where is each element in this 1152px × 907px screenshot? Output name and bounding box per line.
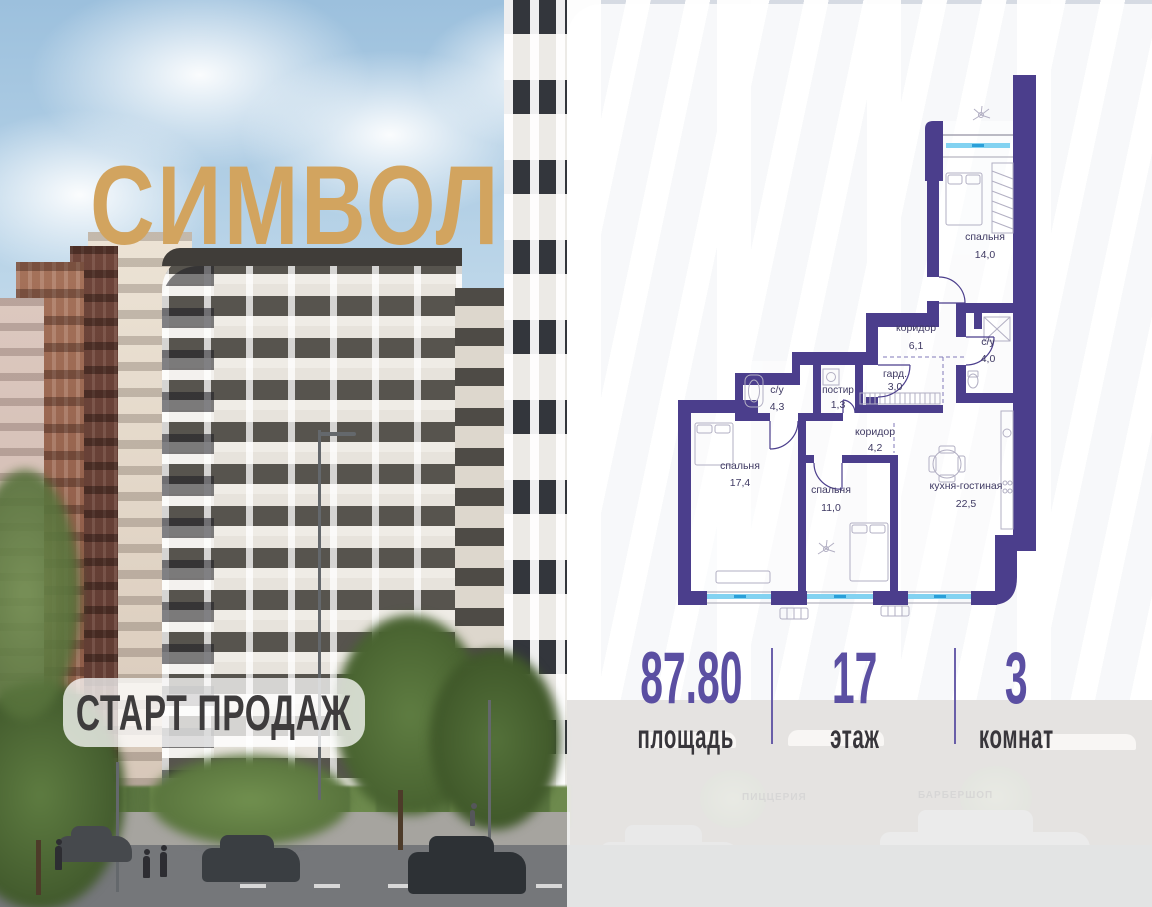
room-label: коридор xyxy=(855,426,895,438)
stat-rooms: 3 комнат xyxy=(940,645,1092,753)
room-label: спальня xyxy=(811,484,851,496)
tree-trunk xyxy=(36,840,41,895)
sales-start-badge[interactable]: СТАРТ ПРОДАЖ xyxy=(63,678,365,747)
street-lamp-arm xyxy=(318,432,356,436)
stat-floor-value: 17 xyxy=(775,645,935,712)
room-label: спальня xyxy=(965,231,1005,243)
room-area: 1,3 xyxy=(831,399,846,411)
stat-rooms-value: 3 xyxy=(940,645,1092,712)
pedestrian xyxy=(143,856,150,878)
project-logo-text: СИМВОЛ xyxy=(90,150,501,262)
room-label: коридор xyxy=(896,322,936,334)
car xyxy=(202,848,300,882)
room-area: 3,0 xyxy=(888,381,903,393)
stat-area-label: площадь xyxy=(600,720,772,753)
promo-banner: ПИЦЦЕРИЯ БАРБЕРШОП СИМВОЛ СТАРТ ПРОДАЖ xyxy=(0,0,1152,907)
room-label: спальня xyxy=(720,460,760,472)
floor-plan: спальня 14,0 коридор 6,1 с/у 4,0 гард. 3… xyxy=(650,75,1060,635)
room-area: 4,3 xyxy=(770,401,785,413)
tree-trunk xyxy=(398,790,403,850)
room-area: 4,0 xyxy=(981,353,996,365)
light-pole xyxy=(116,762,119,892)
room-label: с/у xyxy=(770,384,784,396)
light-pole xyxy=(488,700,491,850)
room-label: кухня-гостиная xyxy=(930,480,1003,492)
plant-icon xyxy=(973,106,990,120)
room-label: гард. xyxy=(883,368,907,380)
room-area: 22,5 xyxy=(956,498,977,510)
stat-floor-label: этаж xyxy=(775,720,935,753)
car xyxy=(58,836,132,862)
car xyxy=(408,852,526,894)
pedestrian xyxy=(160,852,167,877)
stat-area: 87.80 площадь xyxy=(600,645,772,753)
radiator-icon xyxy=(881,606,909,616)
stats-divider xyxy=(771,648,773,744)
pedestrian xyxy=(470,810,475,826)
room-area: 11,0 xyxy=(821,502,841,514)
room-area: 14,0 xyxy=(975,249,996,261)
stat-rooms-label: комнат xyxy=(940,720,1092,753)
room-label: постир xyxy=(822,385,854,396)
pedestrian xyxy=(55,846,62,870)
room-area: 17,4 xyxy=(730,477,751,489)
radiator-icon xyxy=(780,608,808,619)
stat-floor: 17 этаж xyxy=(775,645,935,753)
stat-area-value: 87.80 xyxy=(600,645,772,712)
tree xyxy=(430,650,560,830)
project-logo: СИМВОЛ xyxy=(90,150,510,262)
room-label: с/у xyxy=(981,336,995,348)
room-area: 4,2 xyxy=(868,442,883,454)
room-area: 6,1 xyxy=(909,340,924,352)
sales-start-badge-label: СТАРТ ПРОДАЖ xyxy=(76,684,352,742)
